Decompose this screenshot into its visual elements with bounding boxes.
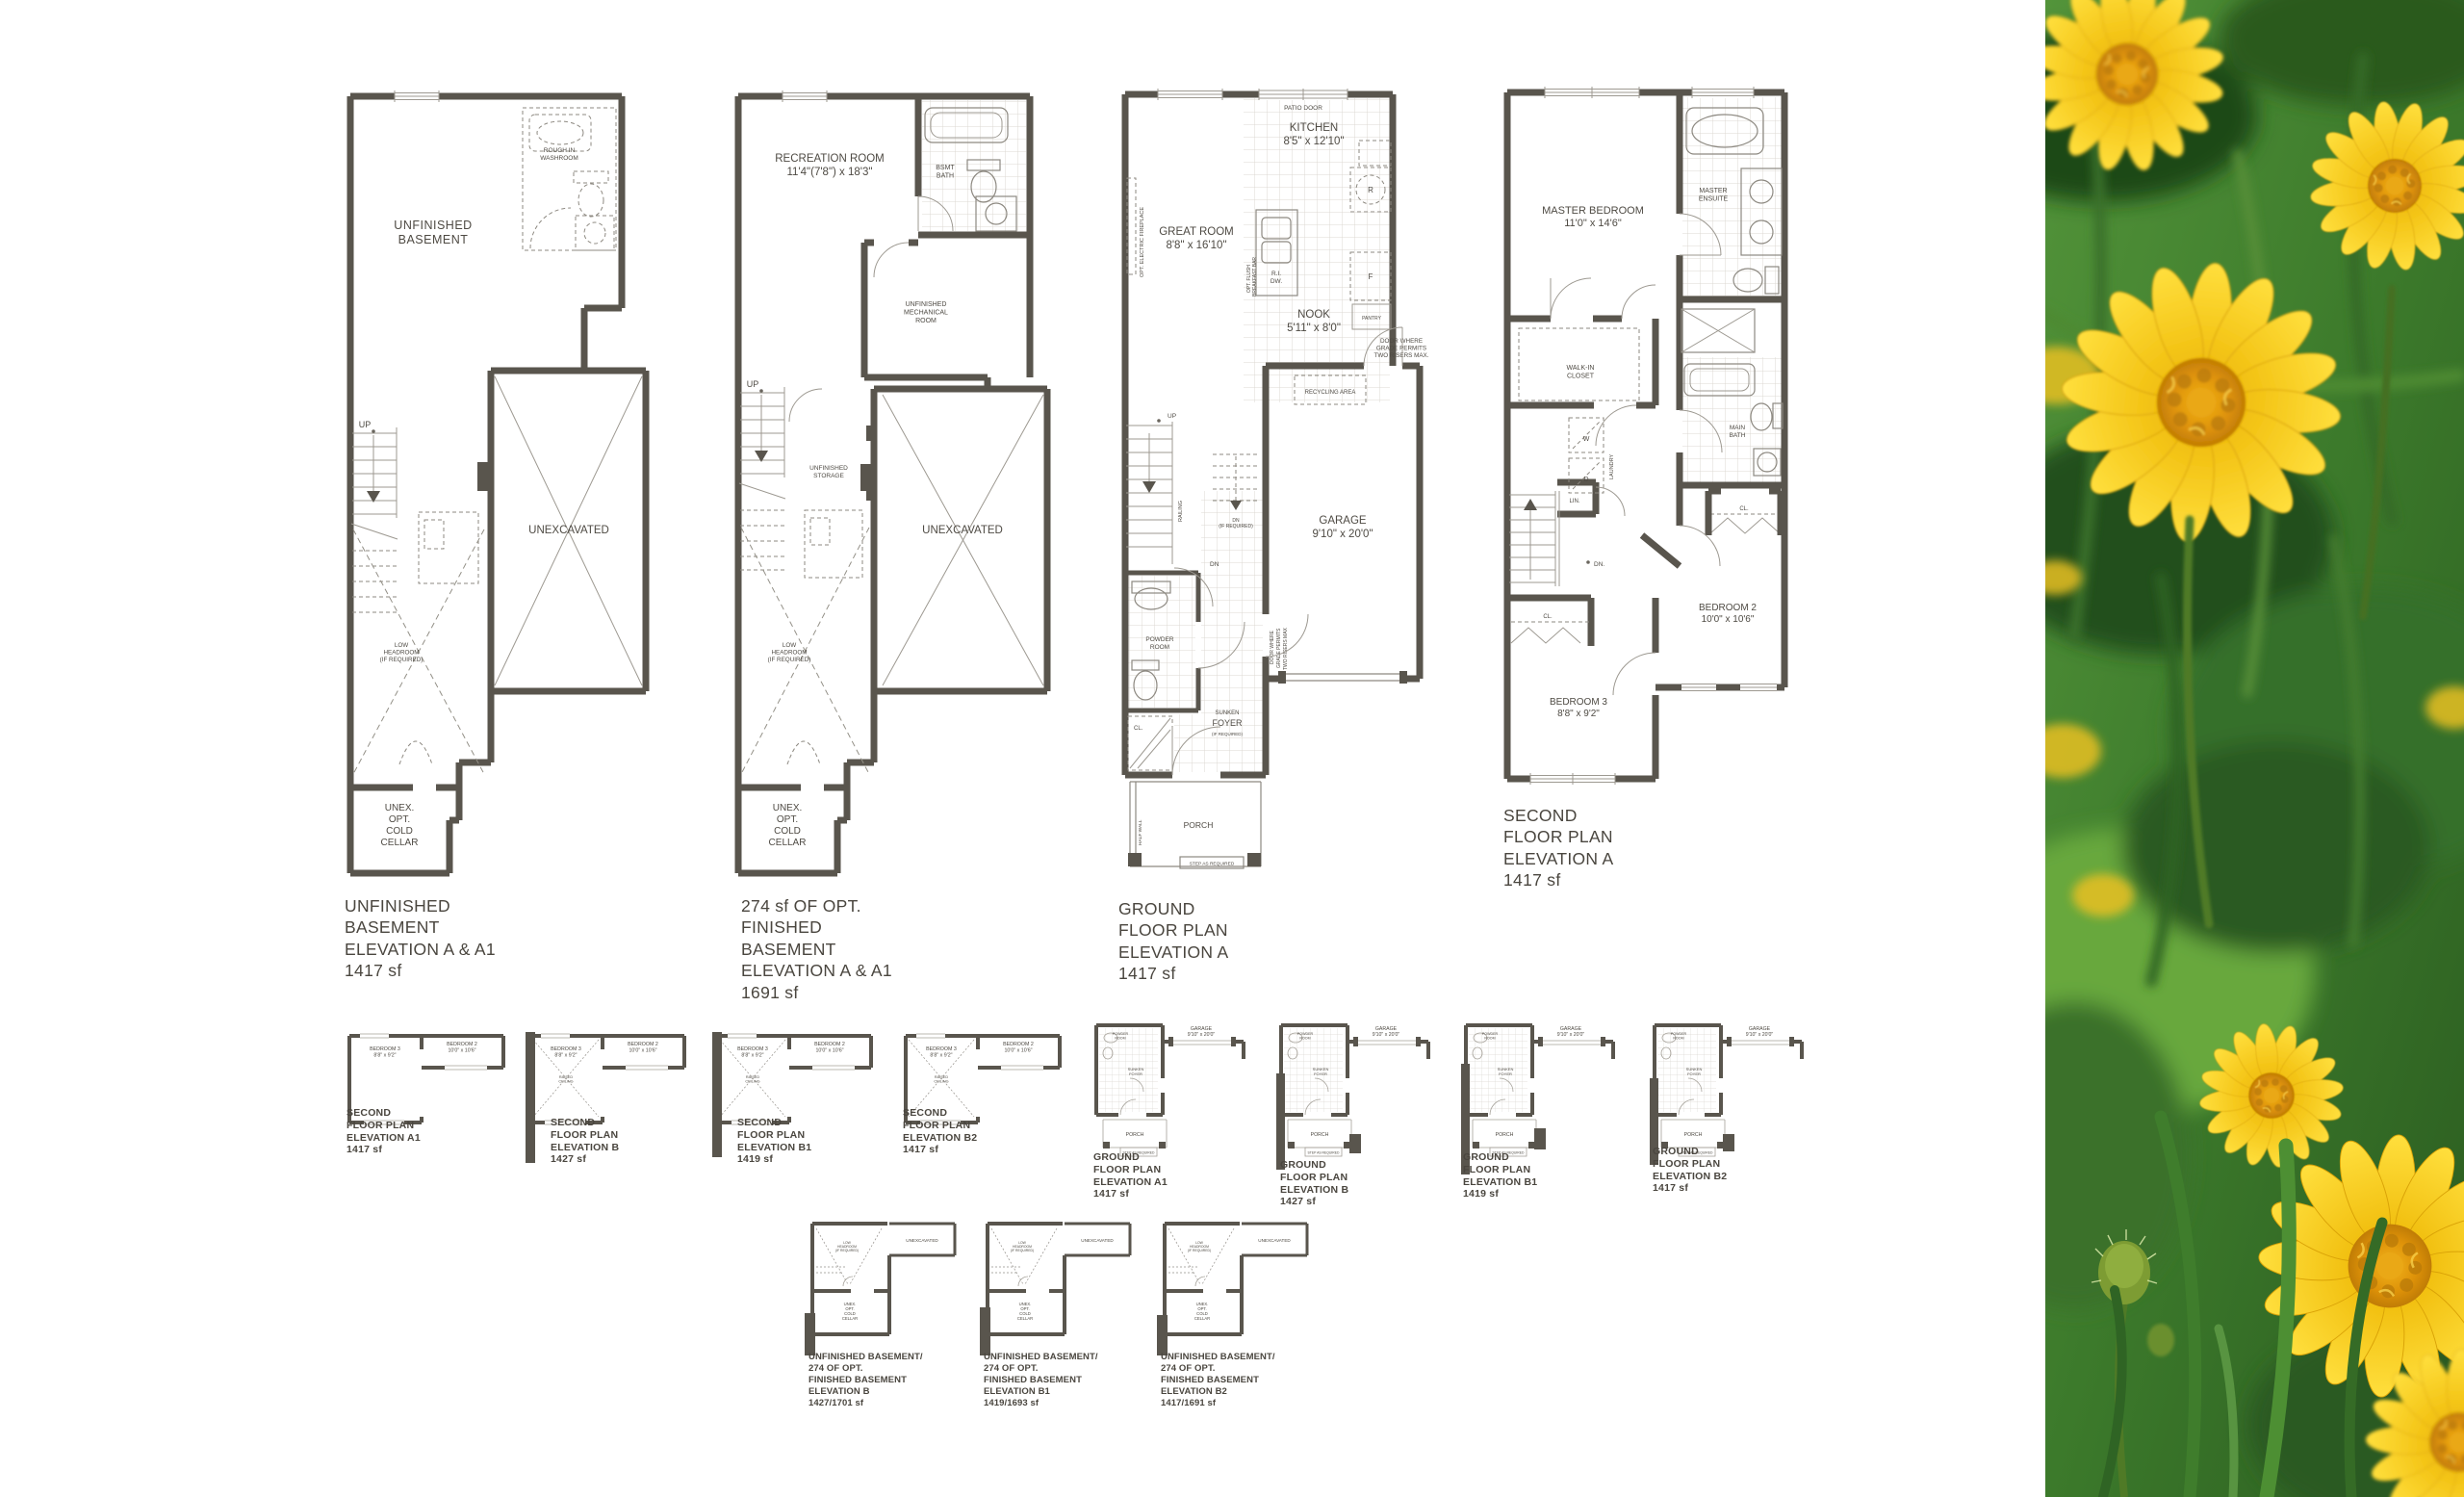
caption-thumb-ground-a1: GROUND FLOOR PLAN ELEVATION A1 1417 sf <box>1093 1151 1238 1200</box>
svg-text:DOOR WHERE: DOOR WHERE <box>1270 630 1275 664</box>
unfinished-basement-label: UNFINISHEDBASEMENT <box>394 219 472 246</box>
plan-finished-basement: BSMTBATH UNFINISHEDMECHANICALROOM RECREA… <box>730 89 1055 880</box>
caption-unfinished-basement: UNFINISHED BASEMENT ELEVATION A & A1 141… <box>345 895 566 982</box>
thumb-basement-b1 <box>980 1219 1139 1358</box>
caption-thumb-basement-b: UNFINISHED BASEMENT/ 274 OF OPT. FINISHE… <box>808 1352 972 1408</box>
up-label: UP <box>359 420 372 429</box>
caption-thumb-ground-b2: GROUND FLOOR PLAN ELEVATION B2 1417 sf <box>1653 1146 1797 1195</box>
porch: STEP AS REQUIRED PORCH HALF WALL <box>1128 782 1261 868</box>
patio-door <box>1259 89 1347 100</box>
svg-text:SUNKEN: SUNKEN <box>1215 710 1239 716</box>
plan-ground-floor: PATIO DOOR KITCHEN8'5" x 12'10" GREAT RO… <box>1116 87 1438 878</box>
great-room-label: GREAT ROOM8'8" x 16'10" <box>1159 226 1234 251</box>
bsmt-bath-label: BSMTBATH <box>936 165 955 179</box>
dn-label: DN. <box>1594 561 1604 568</box>
bed3-closet: CL. <box>1511 614 1589 643</box>
arch-dashed <box>399 741 432 764</box>
storage-door-arc <box>789 389 822 422</box>
linen-xbox <box>1681 309 1755 352</box>
caption-thumb-basement-b1: UNFINISHED BASEMENT/ 274 OF OPT. FINISHE… <box>984 1352 1147 1408</box>
up-label: UP <box>747 379 759 389</box>
svg-text:F: F <box>1369 272 1373 281</box>
plan-second-floor: MASTER BEDROOM11'0" x 14'6" MASTERENSUIT… <box>1500 83 1811 814</box>
unexcavated-label: UNEXCAVATED <box>528 525 609 536</box>
unexcavated-label: UNEXCAVATED <box>922 525 1003 536</box>
railing-label: RAILING <box>1178 501 1184 522</box>
walk-in-closet: WALK-INCLOSET <box>1519 278 1655 400</box>
master-bedroom-label: MASTER BEDROOM11'0" x 14'6" <box>1542 205 1644 229</box>
svg-text:CL.: CL. <box>1543 614 1553 620</box>
svg-text:D: D <box>1583 477 1588 483</box>
thumb-ground-a1 <box>1091 1020 1260 1165</box>
svg-text:FOYER: FOYER <box>1212 718 1243 728</box>
cold-cellar-label: UNEX.OPT.COLDCELLAR <box>769 803 807 848</box>
caption-thumb-basement-b2: UNFINISHED BASEMENT/ 274 OF OPT. FINISHE… <box>1161 1352 1324 1408</box>
low-headroom-label: LOWHEADROOM(IF REQUIRED) <box>768 642 811 663</box>
front-closet: CL. <box>1128 716 1172 770</box>
bedroom3-label: BEDROOM 38'8" x 9'2" <box>1550 697 1607 719</box>
rough-in-under-stairs <box>419 512 478 583</box>
caption-thumb-second-b2: SECOND FLOOR PLAN ELEVATION B2 1417 sf <box>903 1107 1047 1156</box>
second-floor-stairs <box>1509 491 1590 586</box>
caption-second-floor: SECOND FLOOR PLAN ELEVATION A 1417 sf <box>1503 805 1715 891</box>
low-headroom-label: LOWHEADROOM(IF REQUIRED) <box>380 642 423 663</box>
washroom-label: ROUGH INWASHROOM <box>540 147 577 162</box>
fireplace-label: OPT. ELECTRIC FIREPLACE <box>1140 207 1145 277</box>
caption-finished-basement: 274 sf OF OPT. FINISHED BASEMENT ELEVATI… <box>741 895 962 1003</box>
mechanical-label: UNFINISHEDMECHANICALROOM <box>904 301 948 324</box>
brochure-page: { "document": {"type": "floor-plan-broch… <box>0 0 2464 1497</box>
garage-label: GARAGE9'10" x 20'0" <box>1312 515 1373 540</box>
ri-dw-label: R.I.DW. <box>1270 271 1282 285</box>
up-label: UP <box>1168 413 1176 420</box>
brochure-sheet: BEDROOM 38'8" x 9'2" BEDROOM 210'0" x 10… <box>0 0 2464 1497</box>
fireplace-optional: OPT. ELECTRIC FIREPLACE <box>1127 178 1145 277</box>
svg-text:W: W <box>1583 436 1590 443</box>
plan-unfinished-basement: ROUGH INWASHROOM UNFINISHEDBASEMENT UP U… <box>342 89 652 880</box>
grade-note: DOOR WHEREGRADE PERMITSTWO RISERS MAX. <box>1373 338 1428 359</box>
basement-stairs <box>739 387 785 570</box>
svg-text:GRADE PERMITS: GRADE PERMITS <box>1276 628 1282 668</box>
svg-text:R: R <box>1368 186 1373 194</box>
svg-text:RECYCLING AREA: RECYCLING AREA <box>1305 390 1356 396</box>
basement-stairs <box>351 427 398 612</box>
rough-in-washroom <box>523 108 616 250</box>
rough-in-under-stairs <box>805 510 862 578</box>
laundry-label: LAUNDRY <box>1609 453 1615 479</box>
caption-thumb-second-b1: SECOND FLOOR PLAN ELEVATION B1 1419 sf <box>737 1117 882 1166</box>
caption-thumb-ground-b: GROUND FLOOR PLAN ELEVATION B 1427 sf <box>1280 1159 1424 1208</box>
garage-door <box>1278 671 1407 684</box>
closet-label: CL. <box>1134 726 1143 732</box>
linen-label: LIN. <box>1569 499 1579 504</box>
half-wall-label: HALF WALL <box>1138 819 1143 845</box>
bedroom2-label: BEDROOM 210'0" x 10'6" <box>1699 603 1757 625</box>
sunken-foyer: SUNKEN FOYER (IF REQUIRED) <box>1212 710 1244 736</box>
bed2-closet: CL. <box>1708 491 1781 535</box>
caption-ground-floor: GROUND FLOOR PLAN ELEVATION A 1417 sf <box>1118 898 1330 985</box>
patio-door-label: PATIO DOOR <box>1284 105 1322 112</box>
thumb-basement-b <box>805 1219 963 1358</box>
grade-note-vertical: DOOR WHERE GRADE PERMITS TWO RISERS MAX <box>1270 627 1289 670</box>
svg-text:(IF REQUIRED): (IF REQUIRED) <box>1212 732 1244 736</box>
cold-cellar-label: UNEX.OPT.COLDCELLAR <box>381 803 419 848</box>
flower-photo <box>2045 0 2464 1497</box>
bsmt-bath <box>918 100 1026 231</box>
kitchen-label: KITCHEN8'5" x 12'10" <box>1283 122 1344 147</box>
thumb-ground-b <box>1276 1020 1445 1174</box>
storage-label: UNFINISHEDSTORAGE <box>809 465 848 479</box>
unexcavated-cross <box>883 395 1043 685</box>
main-bath-label: MAINBATH <box>1730 425 1746 439</box>
ensuite-label: MASTERENSUITE <box>1699 188 1729 202</box>
caption-thumb-second-a1: SECOND FLOOR PLAN ELEVATION A1 1417 sf <box>346 1107 491 1156</box>
recreation-room-label: RECREATION ROOM11'4"(7'8") x 18'3" <box>775 153 885 178</box>
svg-text:TWO RISERS MAX: TWO RISERS MAX <box>1283 627 1289 670</box>
thumb-basement-b2 <box>1157 1219 1316 1358</box>
mech-door-arc <box>874 243 909 277</box>
wic-label: WALK-INCLOSET <box>1567 365 1595 379</box>
svg-text:PANTRY: PANTRY <box>1362 316 1381 322</box>
caption-thumb-ground-b1: GROUND FLOOR PLAN ELEVATION B1 1419 sf <box>1463 1151 1607 1200</box>
breakfast-bar-label-2: BREAKFAST BAR <box>1252 257 1258 297</box>
step-label: STEP AS REQUIRED <box>1190 862 1235 867</box>
caption-thumb-second-b: SECOND FLOOR PLAN ELEVATION B 1427 sf <box>551 1117 695 1166</box>
dn-label: DN <box>1210 561 1219 568</box>
porch-label: PORCH <box>1184 820 1214 830</box>
svg-text:CL.: CL. <box>1739 506 1749 512</box>
arch-dashed <box>787 741 820 764</box>
